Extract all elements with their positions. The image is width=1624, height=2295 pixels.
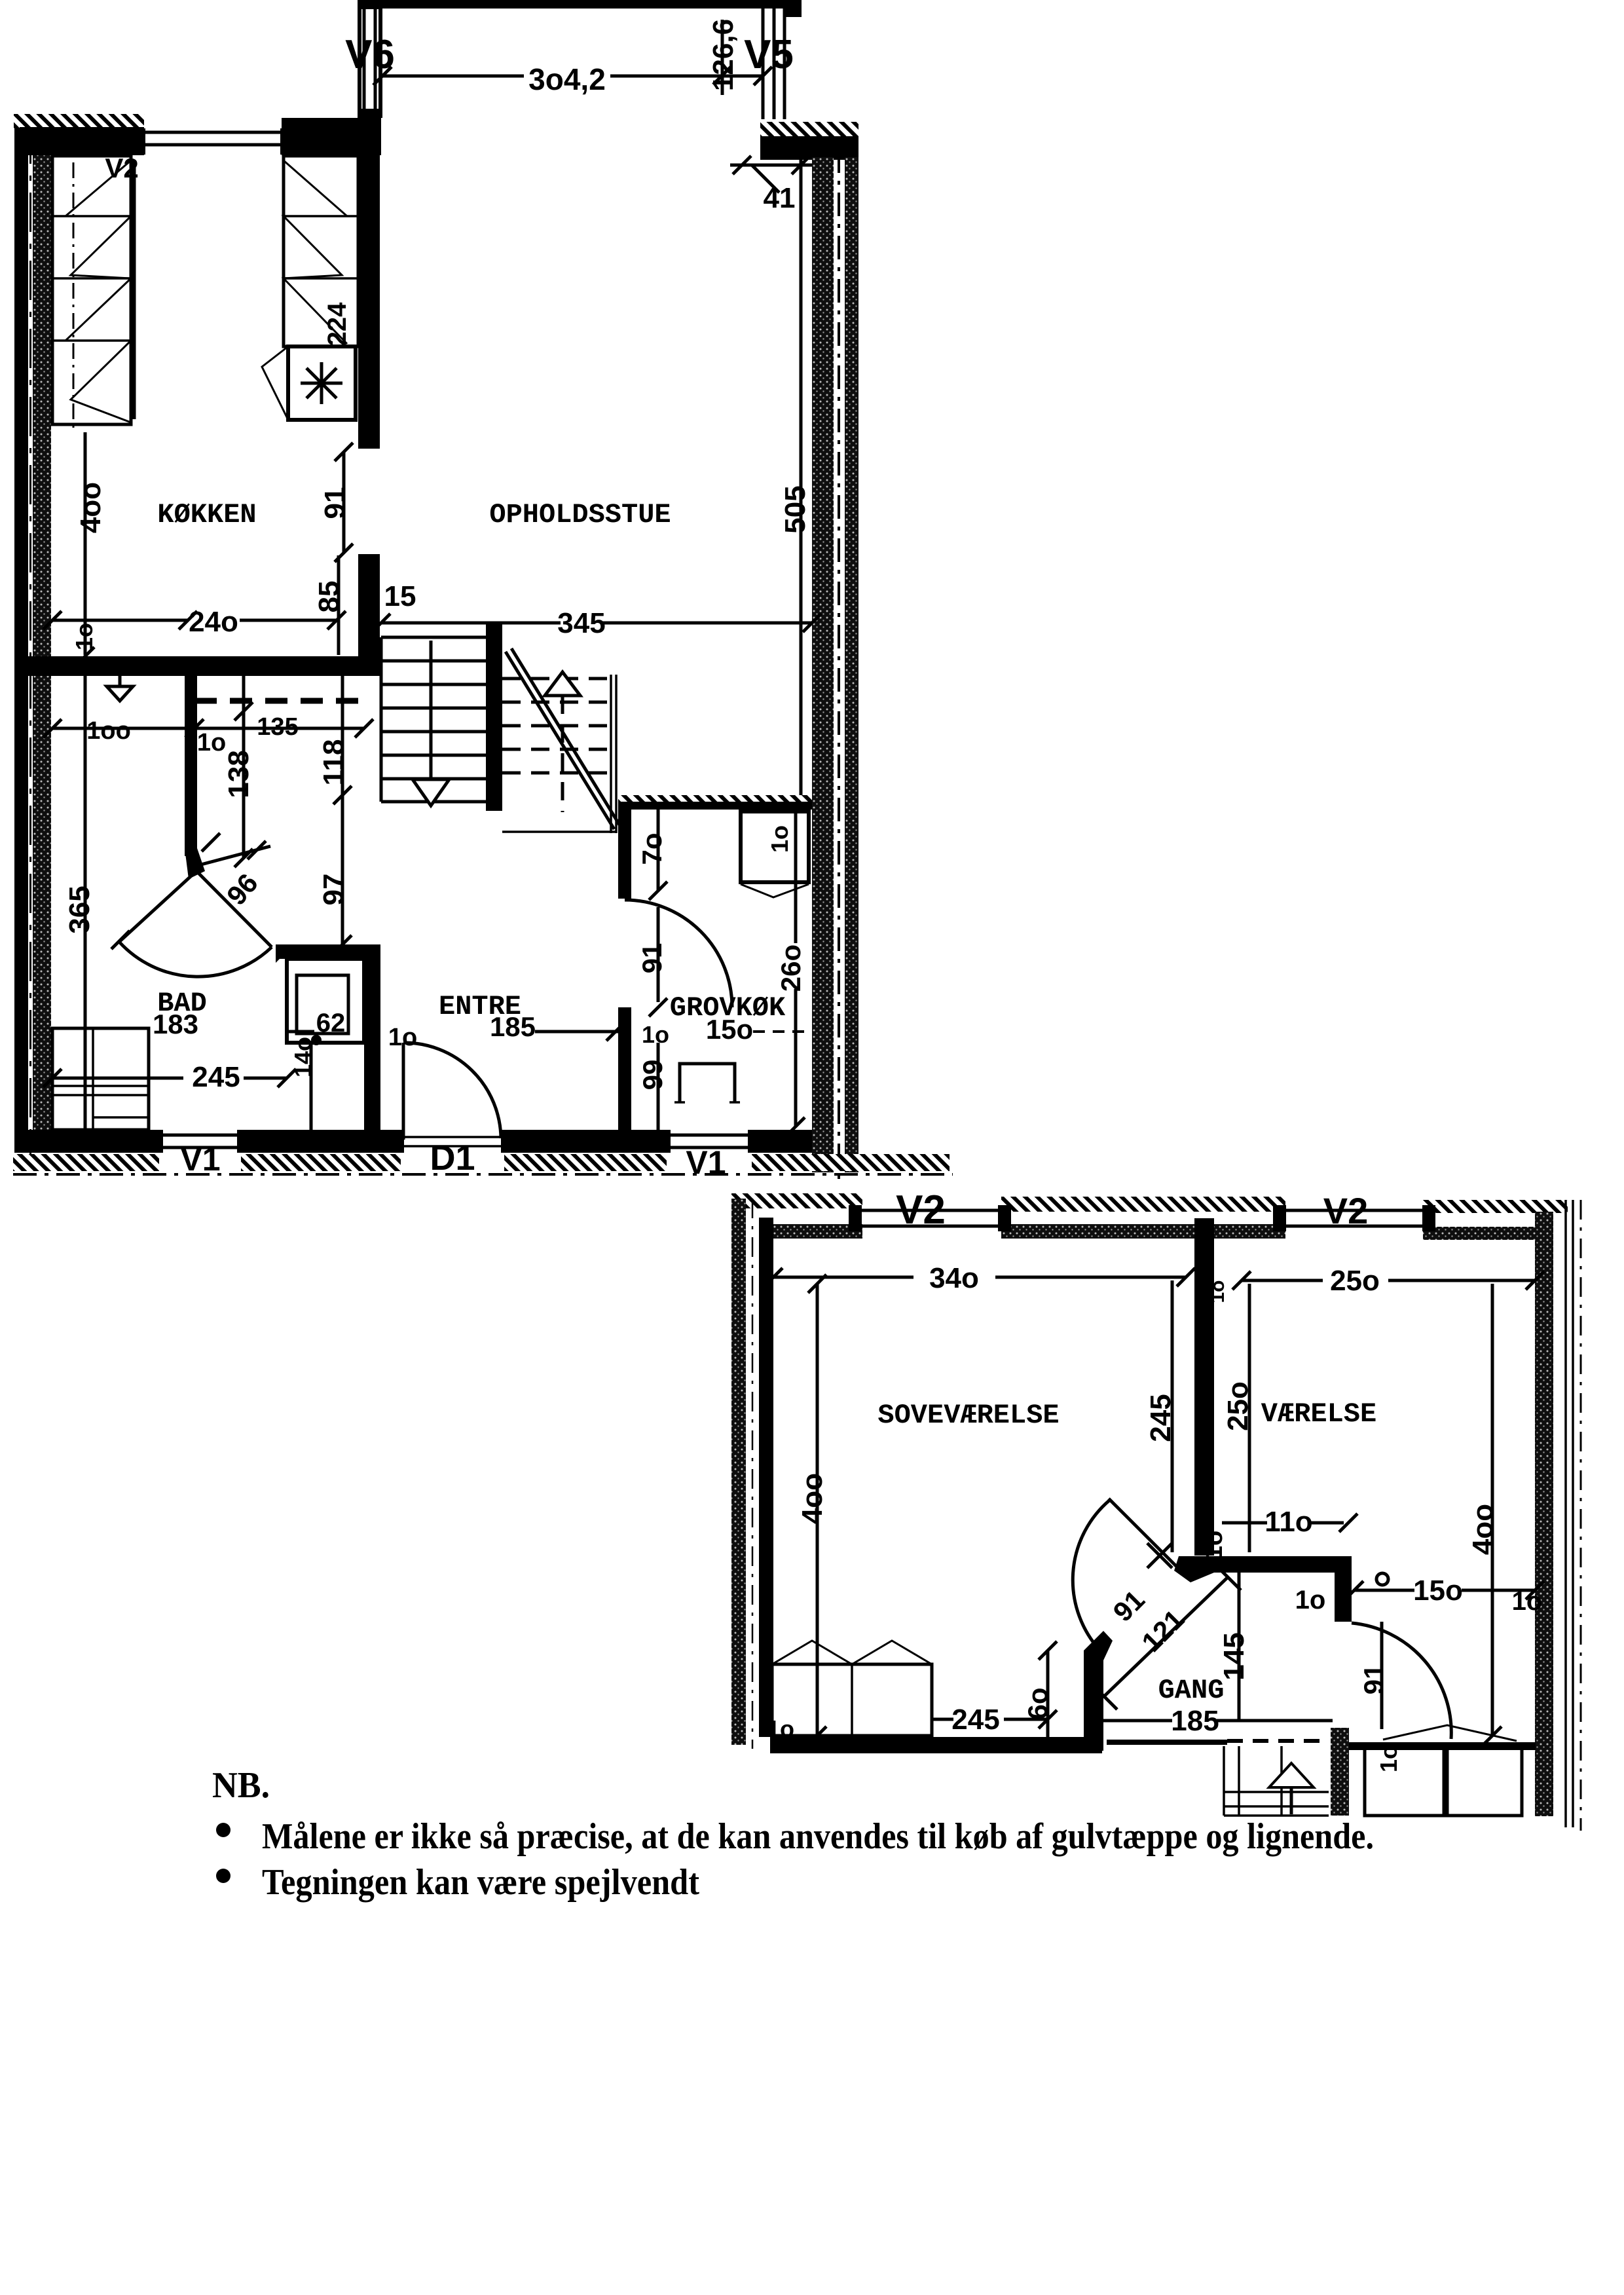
- svg-text:V2: V2: [896, 1187, 946, 1233]
- svg-text:1o: 1o: [71, 623, 98, 650]
- svg-text:505: 505: [779, 485, 811, 533]
- svg-text:15: 15: [384, 580, 416, 612]
- svg-text:138: 138: [223, 750, 255, 798]
- svg-text:4oo: 4oo: [75, 482, 107, 533]
- svg-text:245: 245: [1145, 1394, 1177, 1442]
- svg-text:1o: 1o: [197, 729, 226, 756]
- svg-text:VÆRELSE: VÆRELSE: [1261, 1398, 1376, 1430]
- svg-text:Målene er ikke så præcise, at: Målene er ikke så præcise, at de kan anv…: [262, 1816, 1374, 1857]
- svg-text:99: 99: [637, 1060, 668, 1091]
- svg-text:91: 91: [1358, 1664, 1389, 1695]
- svg-text:4oo: 4oo: [796, 1473, 828, 1524]
- svg-text:97: 97: [318, 874, 350, 906]
- svg-text:245: 245: [192, 1061, 240, 1093]
- svg-text:SOVEVÆRELSE: SOVEVÆRELSE: [877, 1400, 1059, 1431]
- svg-text:24o: 24o: [189, 606, 238, 638]
- svg-text:135: 135: [257, 713, 298, 741]
- svg-text:25o: 25o: [1330, 1265, 1380, 1297]
- svg-text:NB.: NB.: [212, 1765, 270, 1806]
- svg-text:1o: 1o: [1207, 1280, 1228, 1303]
- svg-text:1o: 1o: [767, 1715, 794, 1742]
- svg-text:V1: V1: [180, 1141, 220, 1178]
- svg-text:4oo: 4oo: [1467, 1504, 1499, 1555]
- svg-text:118: 118: [318, 739, 350, 786]
- svg-text:6o: 6o: [1022, 1687, 1053, 1719]
- svg-text:15o: 15o: [1413, 1575, 1463, 1607]
- svg-text:145: 145: [1218, 1632, 1250, 1680]
- svg-text:1o: 1o: [388, 1024, 417, 1051]
- svg-text:14o: 14o: [289, 1037, 316, 1077]
- svg-text:KØKKEN: KØKKEN: [157, 499, 256, 531]
- svg-text:26o: 26o: [775, 944, 806, 992]
- svg-text:34o: 34o: [929, 1262, 979, 1294]
- svg-text:126,6: 126,6: [707, 19, 739, 91]
- svg-text:224: 224: [323, 302, 352, 346]
- svg-text:345: 345: [557, 607, 605, 639]
- svg-text:25o: 25o: [1222, 1381, 1254, 1431]
- svg-text:OPHOLDSSTUE: OPHOLDSSTUE: [489, 499, 671, 531]
- svg-text:GANG: GANG: [1158, 1675, 1225, 1706]
- svg-text:245: 245: [951, 1704, 999, 1736]
- svg-text:185: 185: [1171, 1705, 1219, 1737]
- svg-text:7o: 7o: [637, 832, 667, 865]
- svg-text:91: 91: [319, 487, 351, 519]
- svg-text:62: 62: [316, 1009, 346, 1037]
- svg-text:Tegningen kan være spejlvendt: Tegningen kan være spejlvendt: [262, 1862, 699, 1903]
- svg-text:185: 185: [490, 1011, 536, 1042]
- svg-text:91: 91: [637, 943, 667, 974]
- svg-text:V2: V2: [1323, 1190, 1369, 1231]
- svg-text:1o: 1o: [766, 825, 793, 853]
- svg-text:41: 41: [764, 182, 796, 214]
- svg-text:365: 365: [64, 886, 96, 933]
- svg-text:1o: 1o: [1200, 1531, 1228, 1559]
- svg-text:1o: 1o: [1512, 1587, 1543, 1616]
- svg-text:1o: 1o: [1375, 1745, 1402, 1772]
- svg-text:15o: 15o: [706, 1014, 753, 1045]
- svg-text:85: 85: [313, 581, 345, 613]
- svg-text:11o: 11o: [1264, 1506, 1312, 1538]
- svg-text:1oo: 1oo: [86, 717, 131, 745]
- svg-text:D1: D1: [430, 1138, 475, 1178]
- svg-text:V1: V1: [686, 1144, 726, 1181]
- svg-text:183: 183: [153, 1009, 198, 1039]
- svg-text:1o: 1o: [1295, 1586, 1326, 1614]
- svg-text:1o: 1o: [642, 1021, 669, 1048]
- svg-text:3o4,2: 3o4,2: [528, 62, 606, 96]
